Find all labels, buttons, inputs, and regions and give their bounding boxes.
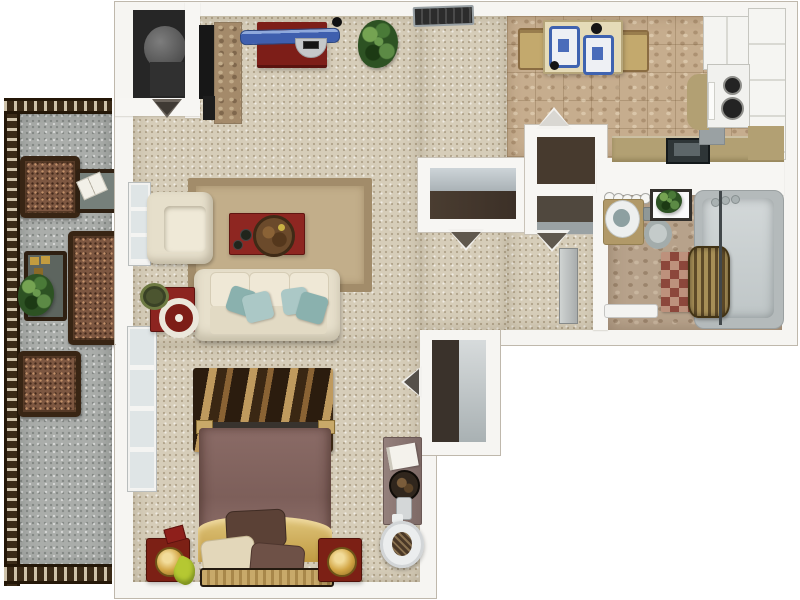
stove-burner	[723, 76, 742, 95]
table-bowl	[240, 229, 252, 241]
fireplace-firebox	[199, 25, 215, 99]
coffee-table	[229, 213, 305, 255]
closet-interior	[432, 340, 459, 442]
footboard	[200, 568, 334, 587]
counter-left-of-stove	[687, 74, 709, 130]
floor-plan	[0, 0, 800, 600]
balcony-railing-bottom	[4, 564, 112, 584]
bathroom-door	[559, 248, 578, 324]
patio-candle	[41, 256, 50, 264]
corner-countertop	[748, 126, 784, 160]
desk-chair	[380, 521, 424, 568]
ceiling-vent	[413, 5, 475, 27]
patio-chair	[20, 156, 80, 218]
closet-interior	[537, 196, 593, 222]
armchair-cushion	[164, 206, 206, 252]
bowl	[591, 23, 602, 34]
tray-accent	[278, 224, 285, 231]
smoke-detector	[332, 17, 342, 27]
vanity-sink-basin	[613, 209, 630, 227]
stove-handle	[708, 82, 715, 120]
closet-shelf	[430, 168, 516, 191]
tub-fixture	[731, 195, 740, 204]
closet-interior	[537, 137, 595, 184]
laundry-hamper	[688, 246, 730, 318]
fireplace-hearth	[203, 96, 215, 120]
bed	[196, 420, 334, 586]
towel-bar	[604, 304, 658, 318]
table-bowl	[233, 240, 243, 250]
desk-chair-center	[392, 532, 412, 556]
nightstand	[318, 538, 362, 582]
refrigerator	[703, 16, 753, 70]
serving-tray	[253, 215, 295, 257]
dining-table	[543, 20, 623, 74]
bowl	[550, 61, 559, 70]
toilet-bowl	[644, 219, 672, 249]
decor-rings	[140, 283, 169, 310]
shower-glass-edge	[719, 191, 722, 325]
sofa	[194, 269, 340, 341]
decor-plate-center	[175, 314, 183, 322]
tv-label-chip	[303, 41, 319, 49]
closet-mirror	[459, 340, 486, 442]
fireplace-stone	[214, 22, 242, 124]
patio-candle	[30, 257, 39, 265]
closet-interior	[430, 191, 516, 219]
stove-burner	[721, 97, 744, 120]
placemat-center	[592, 47, 603, 60]
toilet-seat	[649, 224, 667, 243]
armchair	[147, 192, 213, 264]
placemat-center	[558, 39, 569, 52]
window	[128, 327, 156, 491]
placemat	[583, 35, 614, 75]
balcony-railing-top	[4, 98, 112, 114]
patio-chair	[18, 351, 81, 417]
balcony-railing-left	[4, 98, 20, 586]
utility-box	[150, 62, 184, 96]
tub-fixture	[721, 196, 730, 205]
table-lamp	[327, 547, 357, 577]
kitchen-sink-basin	[674, 143, 700, 156]
